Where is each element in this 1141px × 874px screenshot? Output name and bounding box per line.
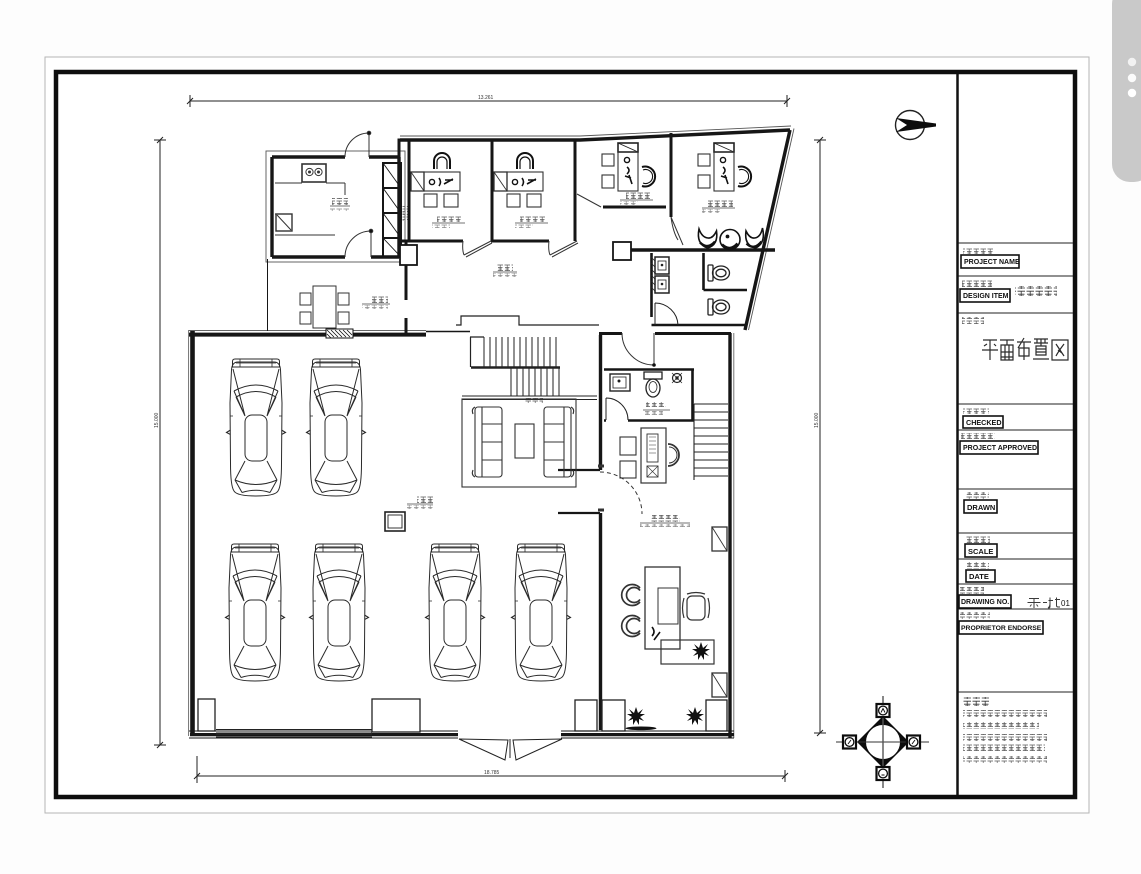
svg-text:PROJECT APPROVED: PROJECT APPROVED (963, 445, 1037, 452)
svg-text:DATE: DATE (969, 572, 989, 581)
svg-text:15.000: 15.000 (154, 412, 160, 428)
svg-text:SCALE: SCALE (968, 547, 993, 556)
svg-text:15.000: 15.000 (814, 412, 820, 428)
svg-text:18.785: 18.785 (484, 770, 500, 776)
svg-text:13.261: 13.261 (478, 95, 494, 101)
svg-text:PROJECT NAME: PROJECT NAME (964, 259, 1020, 266)
svg-text:DRAWING NO.: DRAWING NO. (961, 599, 1009, 606)
svg-text:PROPRIETOR ENDORSE: PROPRIETOR ENDORSE (961, 625, 1042, 632)
svg-text:01: 01 (1061, 599, 1070, 608)
svg-text:DESIGN ITEM: DESIGN ITEM (963, 293, 1009, 300)
svg-text:DRAWN: DRAWN (967, 503, 995, 512)
svg-text:CHECKED: CHECKED (966, 418, 1002, 427)
